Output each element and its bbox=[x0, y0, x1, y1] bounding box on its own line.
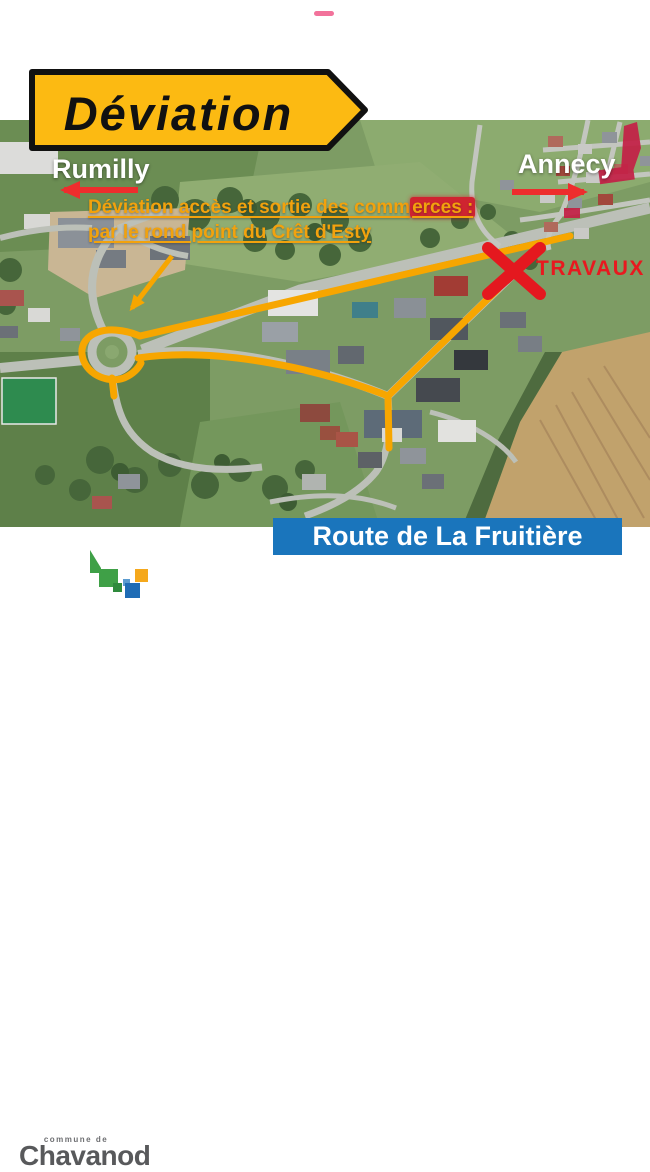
pink-dash-decoration bbox=[314, 11, 334, 16]
deviation-sign-label: Déviation bbox=[26, 86, 331, 141]
annotation-line1: Déviation accès et sortie des commerces … bbox=[88, 195, 475, 220]
city-label-annecy: Annecy bbox=[518, 149, 616, 180]
road-name-banner: Route de La Fruitière bbox=[273, 518, 622, 555]
annotation-highlight: erces : bbox=[410, 197, 475, 218]
deviation-notice-page: Déviation Rumilly Annecy Déviation accès… bbox=[0, 0, 650, 650]
commune-logo: commune de Chavanod bbox=[0, 548, 200, 628]
deviation-annotation: Déviation accès et sortie des commerces … bbox=[88, 195, 475, 245]
deviation-sign: Déviation bbox=[26, 68, 371, 152]
works-label: TRAVAUX bbox=[536, 257, 645, 281]
annotation-line2: par le rond point du Crêt d'Esty bbox=[88, 220, 475, 245]
logo-name: Chavanod bbox=[19, 1140, 179, 1172]
city-label-rumilly: Rumilly bbox=[52, 154, 150, 185]
logo-squares-icon bbox=[86, 550, 156, 602]
